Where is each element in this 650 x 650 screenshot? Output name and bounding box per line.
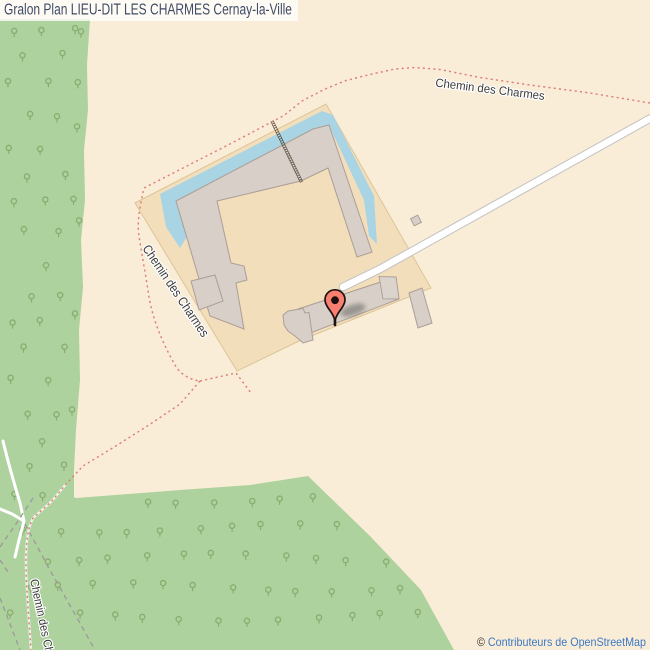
svg-text:Gralon Plan LIEU-DIT LES CHARM: Gralon Plan LIEU-DIT LES CHARMES Cernay-… <box>4 2 292 19</box>
svg-text:© Contributeurs de OpenStreetM: © Contributeurs de OpenStreetMap <box>477 635 646 649</box>
